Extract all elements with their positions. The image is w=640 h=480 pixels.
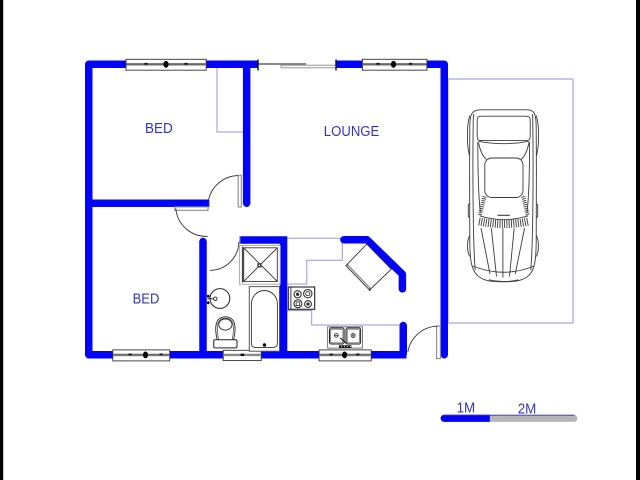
svg-text:BED: BED [145, 121, 173, 137]
svg-text:1M: 1M [457, 401, 476, 417]
svg-text:BED: BED [133, 291, 160, 307]
svg-text:LOUNGE: LOUNGE [324, 124, 380, 140]
svg-text:2M: 2M [518, 401, 537, 417]
